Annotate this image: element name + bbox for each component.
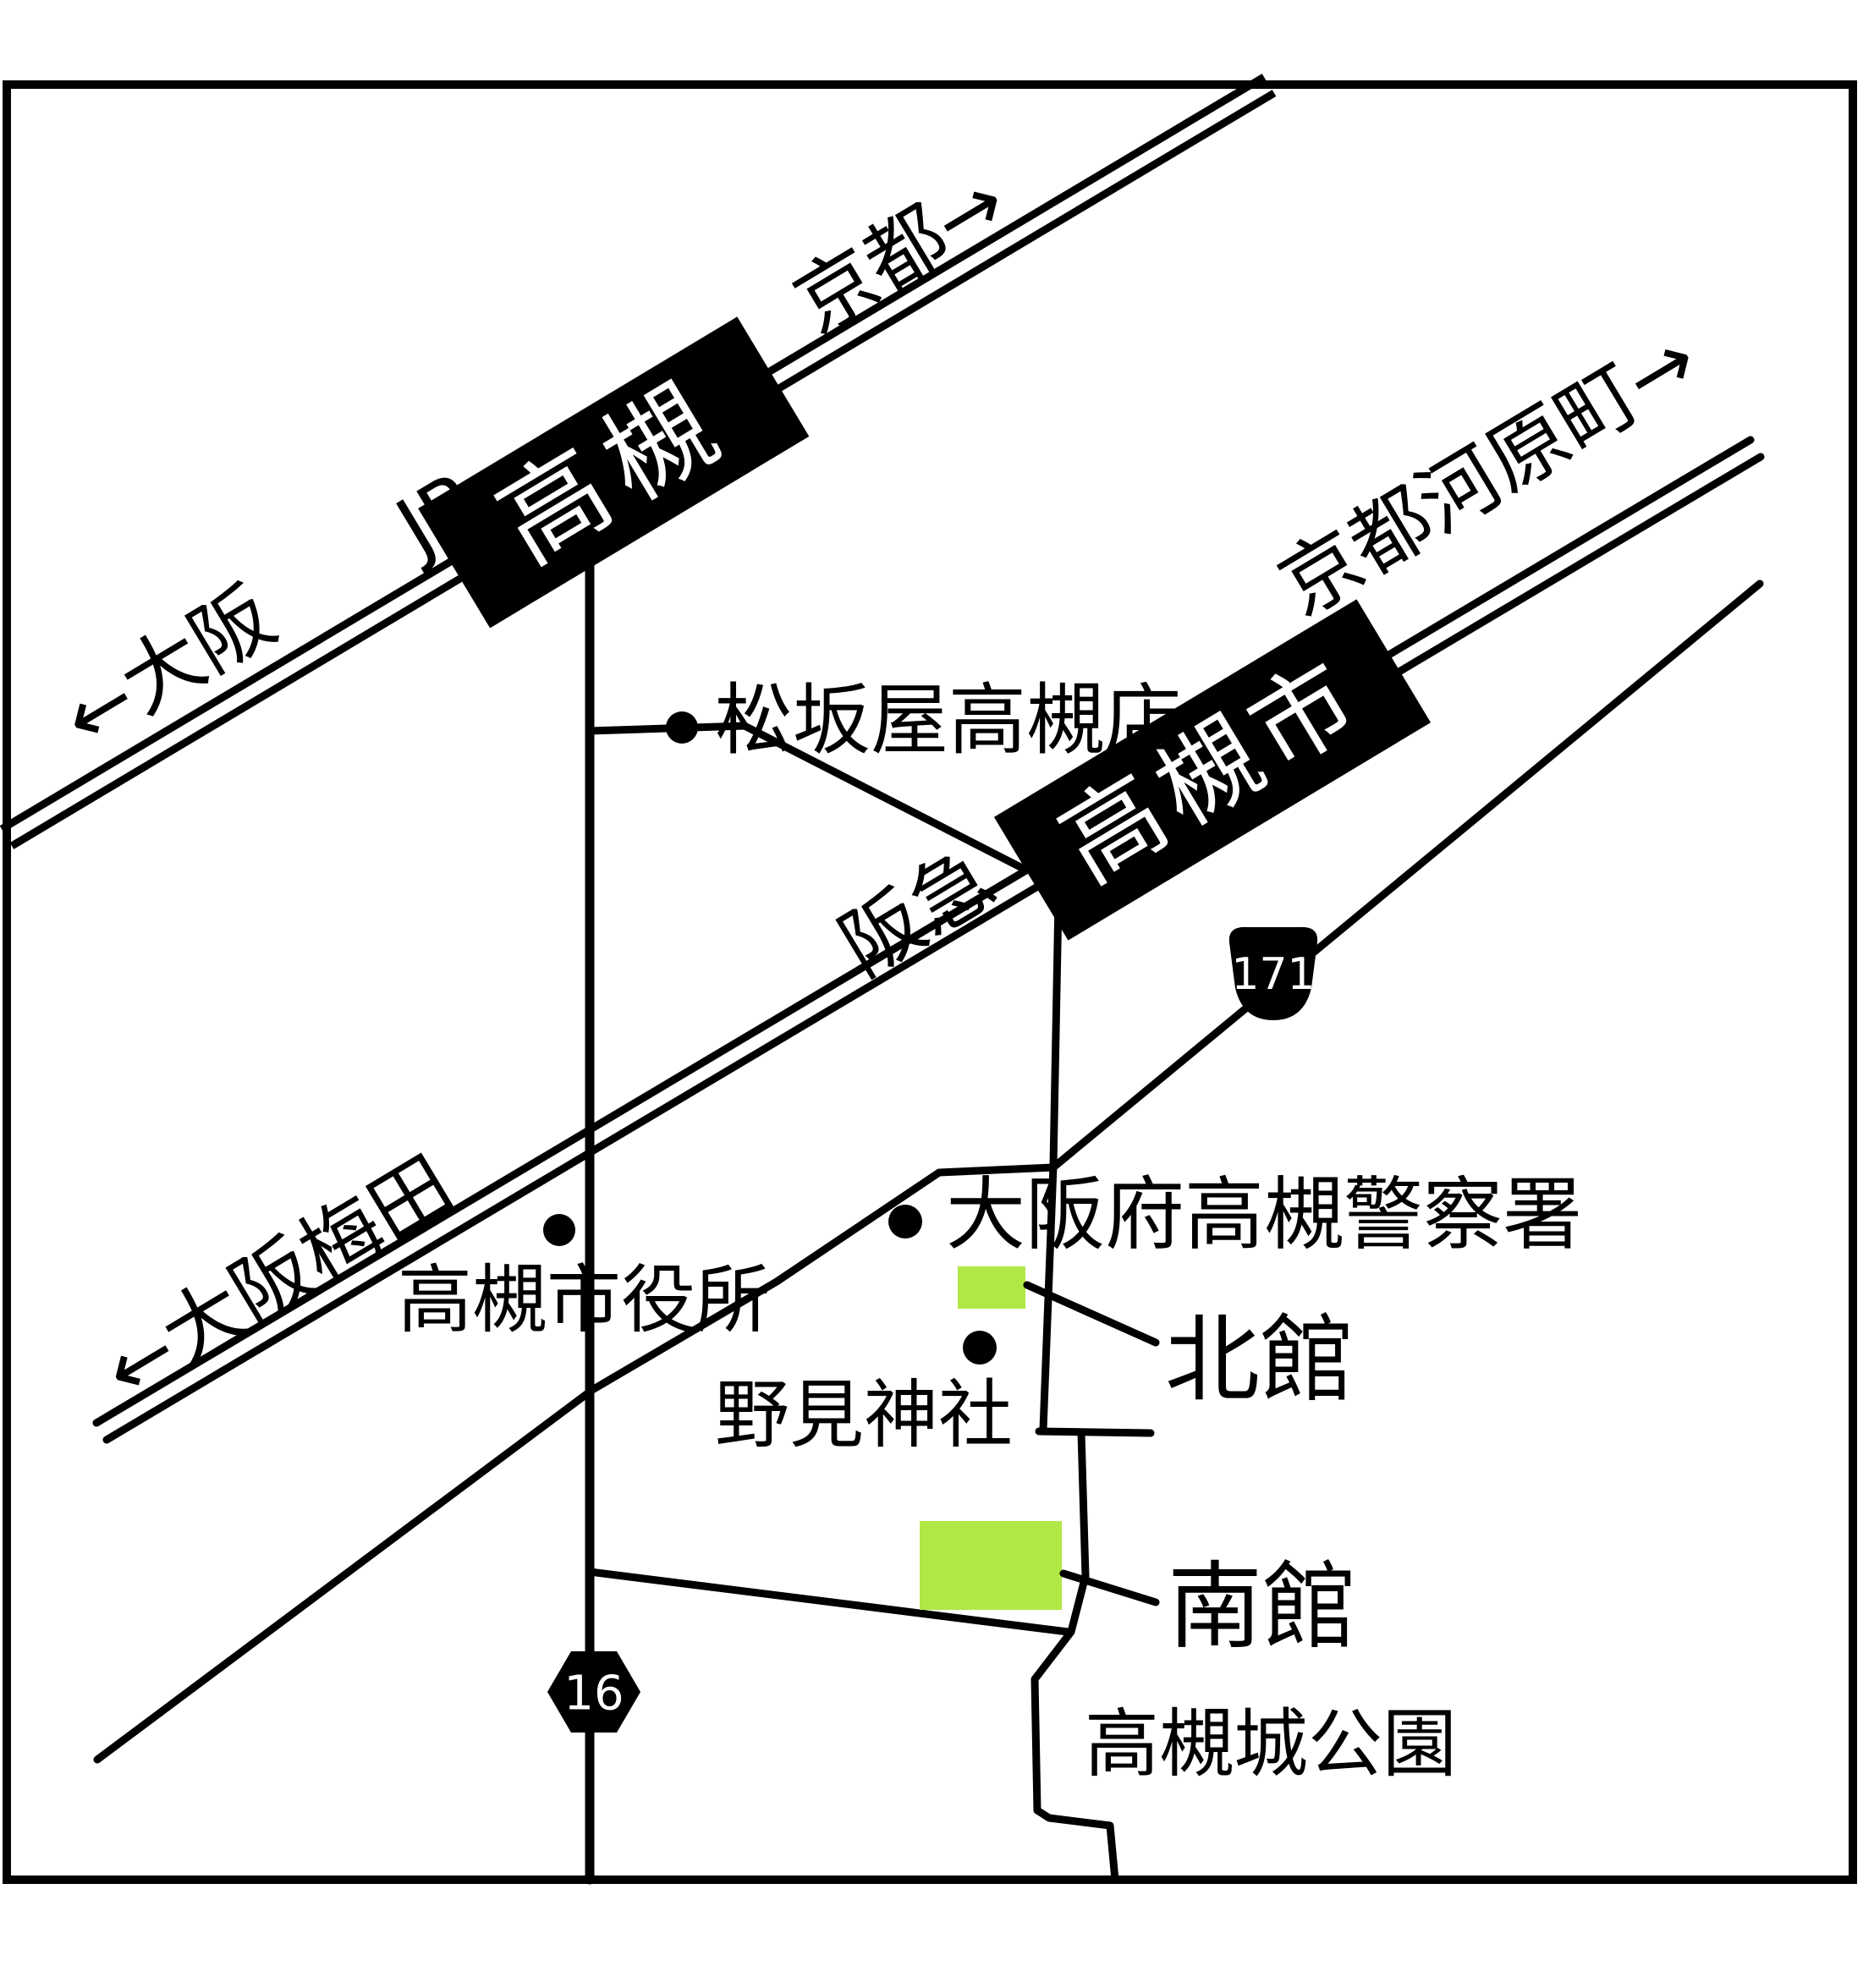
matsuzakaya-dot bbox=[666, 711, 698, 744]
south-building-label: 南館 bbox=[1168, 1560, 1357, 1655]
hankyu-station-box: 高槻市 bbox=[994, 599, 1431, 940]
map-canvas: 高槻 高槻市 171 16 bbox=[0, 0, 1874, 1988]
police-dot bbox=[888, 1205, 922, 1238]
police-label: 大阪府高槻警察署 bbox=[946, 1176, 1582, 1255]
castle-park-label: 高槻城公園 bbox=[1085, 1707, 1457, 1782]
route-16-badge: 16 bbox=[547, 1651, 640, 1733]
north-building-marker bbox=[958, 1266, 1025, 1309]
city-hall-dot bbox=[543, 1214, 575, 1246]
road-block-boundary-lower bbox=[1035, 1433, 1115, 1880]
takatsuki-access-map: 高槻 高槻市 171 16 JR 京都→ ←大阪 阪急 ←大阪梅田 bbox=[0, 0, 1874, 1988]
map-border bbox=[7, 85, 1853, 1880]
jr-station-box: 高槻 bbox=[418, 316, 809, 628]
nomi-shrine-dot bbox=[963, 1331, 997, 1365]
nomi-shrine-label: 野見神社 bbox=[715, 1378, 1013, 1453]
route-171-number: 171 bbox=[1231, 949, 1315, 1000]
road-block-stub bbox=[1039, 1431, 1151, 1433]
city-hall-label: 高槻市役所 bbox=[398, 1263, 770, 1337]
route-16-number: 16 bbox=[563, 1667, 624, 1722]
route-171-badge: 171 bbox=[1229, 927, 1317, 1020]
north-building-label: 北館 bbox=[1165, 1313, 1355, 1408]
south-building-marker bbox=[920, 1521, 1062, 1610]
matsuzakaya-label: 松坂屋高槻店 bbox=[715, 682, 1182, 760]
